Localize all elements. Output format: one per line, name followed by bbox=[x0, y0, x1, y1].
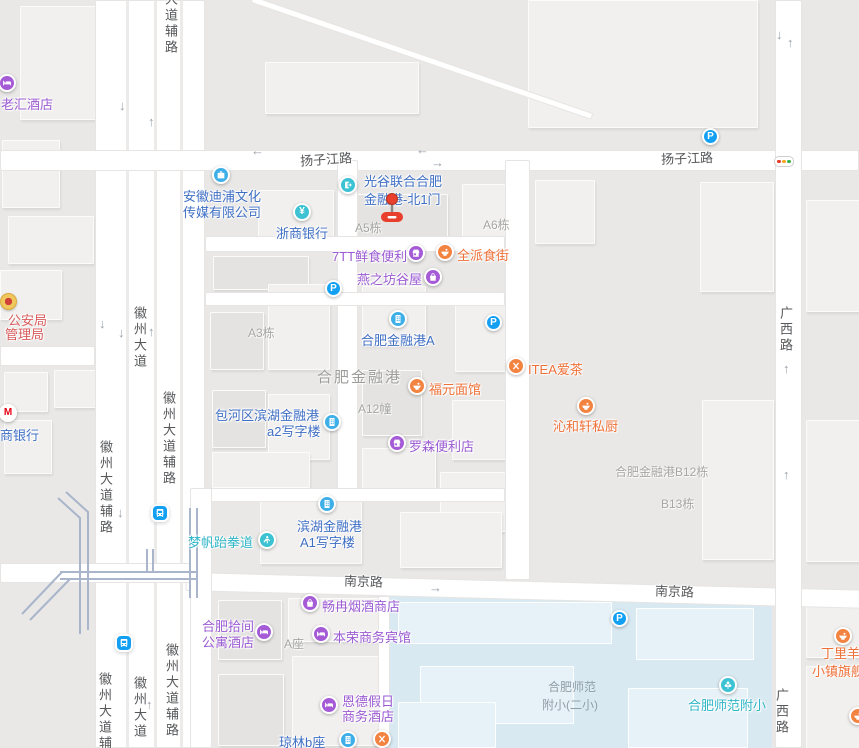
building-icon[interactable] bbox=[318, 495, 336, 513]
poi-label[interactable]: 琼林b座 bbox=[279, 732, 325, 748]
selected-location-marker[interactable] bbox=[381, 192, 405, 224]
poi-label[interactable]: 浙商银行 bbox=[276, 223, 328, 242]
building-label: A12幢 bbox=[358, 400, 391, 417]
road-label: 广西路 bbox=[776, 306, 795, 354]
bed-icon[interactable] bbox=[255, 623, 273, 641]
poi-label[interactable]: 商银行 bbox=[0, 425, 39, 444]
road-direction-arrow-up: ↑ bbox=[787, 36, 794, 49]
utensils-icon[interactable] bbox=[507, 357, 525, 375]
road-direction-arrow-up: ↑ bbox=[783, 468, 790, 481]
poi-label[interactable]: 7TT鲜食便利 bbox=[332, 246, 407, 265]
poi-label[interactable]: 传媒有限公司 bbox=[183, 202, 261, 221]
metro-station-icon[interactable] bbox=[115, 634, 133, 652]
poi-label[interactable]: ITEA爱茶 bbox=[528, 359, 583, 378]
gate-icon[interactable] bbox=[339, 176, 357, 194]
basket-icon[interactable] bbox=[388, 434, 406, 452]
poi-label[interactable]: A1写字楼 bbox=[300, 532, 355, 551]
road-direction-arrow-down: ↓ bbox=[117, 506, 124, 519]
bag-icon[interactable] bbox=[301, 594, 319, 612]
bowl-icon[interactable] bbox=[408, 377, 426, 395]
poi-label[interactable]: 燕之坊谷屋 bbox=[357, 269, 422, 288]
poi-label[interactable]: 丁里羊 bbox=[821, 643, 859, 662]
poi-label[interactable]: 罗森便利店 bbox=[409, 436, 474, 455]
road-direction-arrow-up: ↑ bbox=[148, 115, 155, 128]
building-label: A座 bbox=[284, 635, 304, 652]
road-direction-arrow-right: → bbox=[429, 581, 442, 594]
poi-label[interactable]: 公寓酒店 bbox=[202, 632, 254, 651]
building-label: 合肥金融港B12栋 bbox=[615, 463, 708, 480]
road-label: 徽州大道辅路 bbox=[96, 440, 115, 536]
road-label: 徽州大道 bbox=[130, 676, 149, 740]
person-icon[interactable] bbox=[258, 531, 276, 549]
police-emblem-icon[interactable] bbox=[0, 293, 17, 310]
building-label: A5栋 bbox=[355, 219, 382, 236]
bowl-icon[interactable] bbox=[436, 243, 454, 261]
road-label: 徽州大道辅路 bbox=[159, 391, 178, 487]
building-label: 合肥师范 bbox=[548, 678, 596, 695]
traffic-light-icon bbox=[774, 156, 794, 167]
poi-label[interactable]: 福元面馆 bbox=[429, 379, 481, 398]
road-label: 南京路 bbox=[655, 580, 695, 600]
poi-label[interactable]: 畅冉烟酒商店 bbox=[322, 596, 400, 615]
parking-icon[interactable]: P bbox=[485, 314, 502, 331]
briefcase-icon[interactable] bbox=[212, 166, 230, 184]
poi-label[interactable]: 沁和轩私厨 bbox=[553, 416, 618, 435]
road-direction-arrow-down: ↓ bbox=[119, 99, 126, 112]
building-icon[interactable] bbox=[389, 310, 407, 328]
poi-label[interactable]: 光谷联合合肥 bbox=[364, 171, 442, 190]
poi-label[interactable]: 本荣商务宾馆 bbox=[333, 627, 411, 646]
bag-icon[interactable] bbox=[424, 268, 442, 286]
poi-label[interactable]: 合肥师范附小 bbox=[688, 695, 766, 714]
road-direction-arrow-left: ← bbox=[251, 144, 264, 157]
bed-icon[interactable] bbox=[312, 625, 330, 643]
road-direction-arrow-up: ↑ bbox=[783, 362, 790, 375]
parking-icon[interactable]: P bbox=[325, 280, 342, 297]
road-label: 大道辅路 bbox=[161, 0, 180, 56]
road-direction-arrow-down: ↓ bbox=[776, 28, 783, 41]
road-label: 徽州大道辅路 bbox=[162, 643, 181, 739]
yen-icon[interactable]: ¥ bbox=[293, 203, 311, 221]
poi-label[interactable]: 老汇酒店 bbox=[1, 94, 53, 113]
poi-label[interactable]: 商务酒店 bbox=[342, 706, 394, 725]
utensils-icon[interactable] bbox=[373, 730, 391, 748]
building-icon[interactable] bbox=[339, 731, 357, 748]
road-label: 徽州大道 bbox=[130, 306, 149, 370]
building-label: B13栋 bbox=[661, 495, 694, 512]
poi-label[interactable]: 小镇旗舰店 bbox=[812, 661, 859, 680]
road-direction-arrow-right: → bbox=[431, 156, 444, 169]
poi-label[interactable]: 全派食街 bbox=[457, 245, 509, 264]
poi-label[interactable]: 管理局 bbox=[5, 324, 44, 343]
metro-station-icon[interactable] bbox=[151, 504, 169, 522]
road-label: 扬子江路 bbox=[299, 147, 352, 170]
building-label: A6栋 bbox=[483, 216, 510, 233]
poi-label[interactable]: a2写字楼 bbox=[267, 421, 320, 440]
road-label: 南京路 bbox=[344, 570, 384, 590]
parking-icon[interactable]: P bbox=[702, 128, 719, 145]
road-label: 徽州大道辅路 bbox=[95, 672, 114, 748]
poi-label[interactable]: 梦帆跆拳道 bbox=[188, 532, 253, 551]
leaf-icon[interactable] bbox=[719, 676, 737, 694]
poi-label[interactable]: 合肥金融港A bbox=[361, 330, 435, 349]
map-canvas[interactable]: ↓↑↓↓↑↓↑↓↑↑↑←←→→ 大道辅路扬子江路扬子江路广西路徽州大道徽州大道辅… bbox=[0, 0, 859, 748]
building-icon[interactable] bbox=[323, 413, 341, 431]
building-label: 附小(二小) bbox=[542, 696, 598, 713]
road-label: 扬子江路 bbox=[661, 147, 714, 168]
road-direction-arrow-left: ← bbox=[416, 143, 429, 156]
parking-icon[interactable]: P bbox=[611, 610, 628, 627]
building-label: A3栋 bbox=[248, 324, 275, 341]
basket-icon[interactable] bbox=[407, 244, 425, 262]
road-direction-arrow-down: ↓ bbox=[118, 326, 125, 339]
building-label: 合肥金融港 bbox=[317, 366, 402, 387]
bed-icon[interactable] bbox=[320, 696, 338, 714]
road-label: 广西路 bbox=[772, 688, 791, 736]
road-direction-arrow-down: ↓ bbox=[99, 317, 106, 330]
bowl-icon[interactable] bbox=[577, 397, 595, 415]
